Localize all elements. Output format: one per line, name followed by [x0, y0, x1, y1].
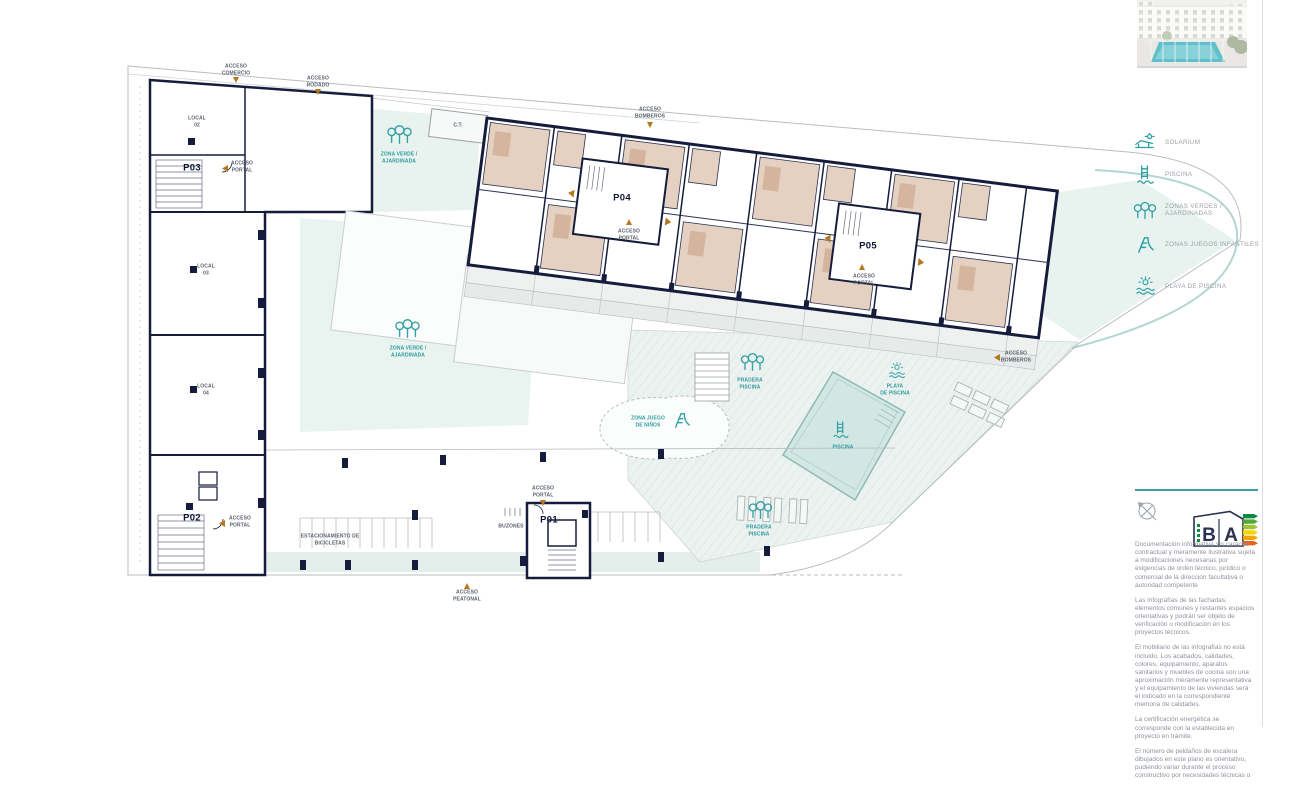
estacionamiento-label: ESTACIONAMIENTO DE BICICLETAS — [301, 533, 360, 547]
disclaimer: Documentación informativa sin carácter c… — [1135, 541, 1255, 787]
piscina-icon — [1133, 162, 1157, 186]
disclaimer-paragraph: Las infografías de las fachadas, element… — [1135, 597, 1255, 638]
zona-juego-label: ZONA JUEGO DE NIÑOS — [631, 415, 665, 429]
piscina-label: PISCINA — [833, 445, 854, 452]
acceso-portal-p04-label: ACCESO PORTAL — [618, 228, 640, 242]
plan-sheet: ACCESO COMERCIO ACCESO RODADO ACCESO BOM… — [0, 0, 1290, 727]
local-03-label: LOCAL 03 — [197, 263, 215, 277]
north-compass-icon — [1134, 498, 1160, 524]
zonas-verdes-icon — [1133, 198, 1157, 222]
disclaimer-paragraph: El número de peldaños de escalera dibuja… — [1135, 748, 1255, 781]
zona-verde-label: ZONA VERDE / AJARDINADA — [390, 345, 427, 359]
disclaimer-paragraph: El mobiliario de las infografías no está… — [1135, 644, 1255, 709]
playa-piscina-label: PLAYA DE PISCINA — [880, 383, 910, 397]
acceso-peatonal-label: ACCESO PEATONAL — [453, 589, 481, 603]
portal-p03-label: P03 — [183, 163, 201, 173]
disclaimer-paragraph: Documentación informativa sin carácter c… — [1135, 541, 1255, 590]
playa-piscina-icon — [1133, 274, 1157, 298]
juegos-infantiles-icon — [1133, 232, 1157, 256]
legend-label: PLAYA DE PISCINA — [1165, 283, 1226, 290]
legend-label: PISCINA — [1165, 171, 1192, 178]
acceso-bomberos-label: ACCESO BOMBEROS — [635, 106, 665, 120]
acceso-bomberos-right-label: ACCESO BOMBEROS — [1001, 350, 1031, 364]
legend-label: ZONAS VERDES / AJARDINADAS — [1165, 203, 1261, 217]
panel-divider — [1262, 0, 1263, 727]
acceso-portal-p03-label: ACCESO PORTAL — [231, 160, 253, 174]
legend-item-solarium: SOLARIUM — [1133, 130, 1200, 154]
zona-verde-label: ZONA VERDE / AJARDINADA — [381, 151, 418, 165]
panel-rule — [1135, 489, 1258, 491]
legend-item-juegos: ZONAS JUEGOS INFANTILES — [1133, 232, 1259, 256]
legend-item-playa: PLAYA DE PISCINA — [1133, 274, 1226, 298]
acceso-comercio-label: ACCESO COMERCIO — [222, 63, 250, 77]
legend-label: SOLARIUM — [1165, 139, 1200, 146]
local-02-label: LOCAL 02 — [188, 115, 206, 129]
ct-label: C.T. — [453, 123, 462, 130]
mailboxes — [505, 508, 520, 516]
pradera-piscina-2-label: PRADERA PISCINA — [746, 524, 771, 538]
acceso-portal-p01-label: ACCESO PORTAL — [532, 485, 554, 499]
portal-p04-label: P04 — [613, 193, 631, 203]
local-04-label: LOCAL 04 — [197, 383, 215, 397]
legend-item-zonas-verdes: ZONAS VERDES / AJARDINADAS — [1133, 198, 1261, 222]
portal-p05-label: P05 — [859, 241, 877, 251]
legend-item-piscina: PISCINA — [1133, 162, 1192, 186]
render-image — [1137, 0, 1247, 68]
buzones-label: BUZONES — [498, 524, 523, 531]
pradera-piscina-label: PRADERA PISCINA — [737, 377, 762, 391]
portal-p01-core — [527, 503, 590, 578]
acceso-rodado-label: ACCESO RODADO — [307, 75, 330, 89]
solarium-icon — [1133, 130, 1157, 154]
acceso-portal-p05-label: ACCESO PORTAL — [853, 273, 875, 287]
portal-p02-label: P02 — [183, 513, 201, 523]
legend-label: ZONAS JUEGOS INFANTILES — [1165, 241, 1259, 248]
acceso-portal-p02-label: ACCESO PORTAL — [229, 515, 251, 529]
courtyard-stairs — [695, 353, 729, 401]
building-render-thumbnail — [1137, 0, 1247, 68]
portal-p01-label: P01 — [540, 515, 558, 525]
disclaimer-paragraph: La certificación energética se correspon… — [1135, 716, 1255, 740]
